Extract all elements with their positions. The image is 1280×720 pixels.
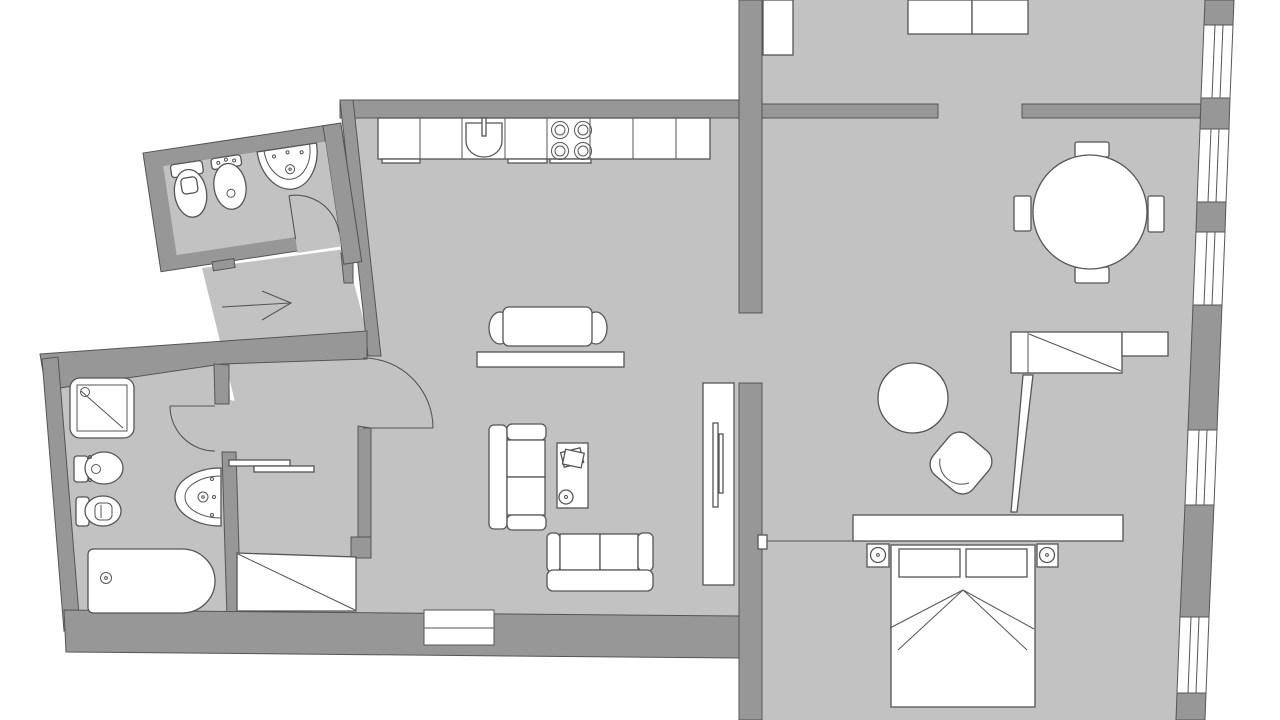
island-bench <box>477 352 624 367</box>
desk-stool <box>559 490 573 504</box>
window-1 <box>1201 25 1233 98</box>
island-table <box>503 307 592 346</box>
sofa-v-cushion-2 <box>507 477 545 515</box>
band-wall-3 <box>1196 202 1226 232</box>
bath-bidet-bowl <box>85 496 121 526</box>
tv-screen-a <box>713 423 718 507</box>
sofa-h-armrest-left <box>547 533 560 572</box>
window-5 <box>1177 617 1209 693</box>
dining-cabinet-b <box>972 0 1028 34</box>
round-side-table <box>878 363 948 433</box>
bathtub <box>88 549 215 613</box>
sofa-v-cushion-1 <box>507 440 545 477</box>
wall-center-vertical-lower <box>739 383 762 720</box>
pillow-left <box>899 549 960 577</box>
dining-chair-left <box>1014 196 1031 231</box>
band-wall-1 <box>1204 0 1234 25</box>
kitchen-counter <box>378 118 710 159</box>
floor-kitchen-living <box>330 104 745 640</box>
band-wall-6 <box>1176 693 1206 720</box>
dining-round-table <box>1033 155 1147 269</box>
counter-lip-1 <box>382 159 420 163</box>
sofa-h-back <box>547 570 653 591</box>
wall-dining-divider-right <box>1022 104 1202 118</box>
sofa-h-cushion-1 <box>560 534 600 570</box>
band-wall-2 <box>1200 98 1230 129</box>
window-4 <box>1185 430 1217 505</box>
sofa-v-armrest-bottom <box>507 515 546 530</box>
sofa-h-cushion-2 <box>600 534 638 570</box>
lamp-left <box>871 548 886 563</box>
window-2 <box>1197 129 1229 202</box>
dining-cabinet-left <box>763 0 793 55</box>
wall-closet-east-foot <box>351 537 371 558</box>
sliding-door-handle <box>758 535 767 549</box>
kitchen-faucet <box>482 118 486 136</box>
wall-dining-divider-left <box>762 104 938 118</box>
shower-tray <box>70 378 134 438</box>
pillow-right <box>966 549 1027 577</box>
wall-bathroom-door-stub <box>214 364 229 404</box>
wall-south-band <box>64 610 739 658</box>
band-wall-4 <box>1188 305 1222 430</box>
window-3 <box>1193 232 1225 305</box>
long-cabinet <box>853 515 1123 541</box>
band-wall-5 <box>1180 505 1214 617</box>
wc-toilet-seat <box>180 176 198 194</box>
south-window-lower <box>424 628 494 645</box>
floor-plan-page <box>0 0 1280 720</box>
south-window-upper <box>424 610 494 628</box>
sofa-v-back <box>489 425 507 529</box>
closet-shelf-bar-b <box>254 466 314 472</box>
wall-kitchen-top <box>340 100 740 118</box>
wall-center-vertical-upper <box>739 0 762 313</box>
floor-plan-canvas <box>0 0 1280 720</box>
counter-lip-2 <box>508 159 547 163</box>
desk-paper-b <box>563 449 585 468</box>
tv-screen-b <box>719 434 723 493</box>
sofa-v-armrest-top <box>507 424 546 440</box>
lamp-right <box>1040 548 1055 563</box>
dining-cabinet-a <box>908 0 972 34</box>
wardrobe-side-box <box>1122 332 1168 356</box>
sofa-h-armrest-right <box>638 533 653 571</box>
dining-chair-right <box>1148 196 1164 232</box>
closet-shelf-bar-a <box>229 460 290 466</box>
